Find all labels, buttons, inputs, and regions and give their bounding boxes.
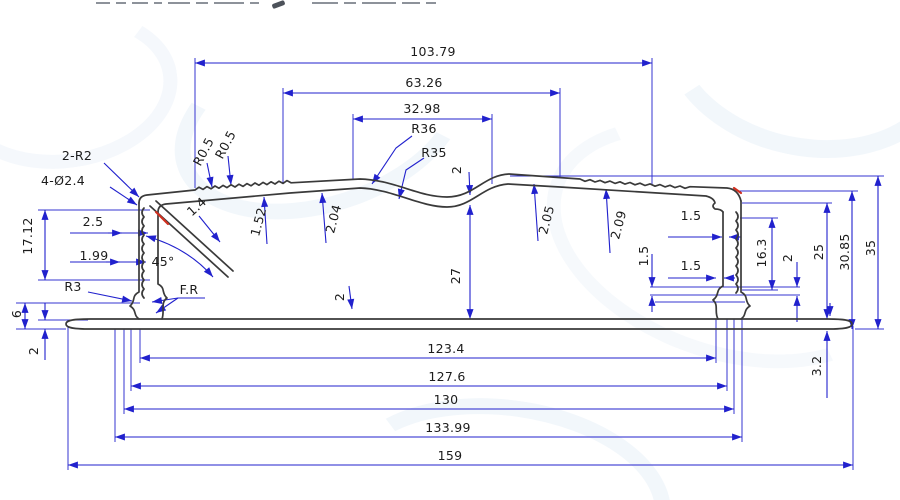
dim-label-3-2: 3.2 [811, 356, 824, 377]
dim-label-2-right: 2 [782, 254, 795, 262]
dim-label-2-bottom: 2 [334, 293, 347, 301]
dim-label-127-6: 127.6 [428, 371, 465, 384]
angle-label-45: 45° [151, 256, 174, 269]
dim-label-2-5: 2.5 [83, 216, 104, 229]
right-wall-channel [736, 212, 738, 293]
dim-label-1-99: 1.99 [79, 250, 108, 263]
fillet-label-fr: F.R [180, 284, 199, 297]
dim-label-103-79: 103.79 [410, 46, 456, 59]
dim-label-2-left: 2 [28, 347, 41, 355]
dim-label-16-3: 16.3 [756, 238, 769, 267]
dim-label-63-26: 63.26 [405, 77, 442, 90]
dim-label-30-85: 30.85 [839, 233, 852, 270]
dim-label-6: 6 [11, 310, 24, 318]
radius-label-r36: R36 [411, 123, 437, 136]
left-wall-outer [130, 203, 139, 319]
profile-outline [66, 174, 852, 329]
radius-label-r3: R3 [64, 281, 81, 294]
dim-label-159: 159 [438, 450, 463, 463]
dim-label-130: 130 [434, 394, 459, 407]
hole-label-4-dia-2-4: 4-Ø2.4 [41, 175, 85, 188]
dim-label-1-5-low: 1.5 [681, 260, 702, 273]
dim-label-35: 35 [865, 240, 878, 257]
radius-label-r35: R35 [421, 147, 447, 160]
dim-label-1-5-vert: 1.5 [638, 246, 651, 267]
technical-drawing: 103.79 63.26 32.98 R36 R35 2-R2 4-Ø2.4 R… [0, 0, 900, 500]
dim-label-32-98: 32.98 [403, 103, 440, 116]
dim-label-1-5-top: 1.5 [681, 210, 702, 223]
dim-label-2-top: 2 [451, 166, 464, 174]
dim-label-123-4: 123.4 [427, 343, 464, 356]
right-wall-outer [741, 201, 750, 319]
dim-label-27: 27 [450, 268, 463, 285]
dim-label-17-12: 17.12 [22, 217, 35, 254]
right-wall-inner [713, 212, 723, 319]
left-wall-channel [142, 208, 144, 298]
lid-inner [158, 184, 723, 212]
dim-label-25: 25 [813, 244, 826, 261]
dim-label-133-99: 133.99 [425, 422, 471, 435]
radius-label-2-r2: 2-R2 [62, 150, 92, 163]
